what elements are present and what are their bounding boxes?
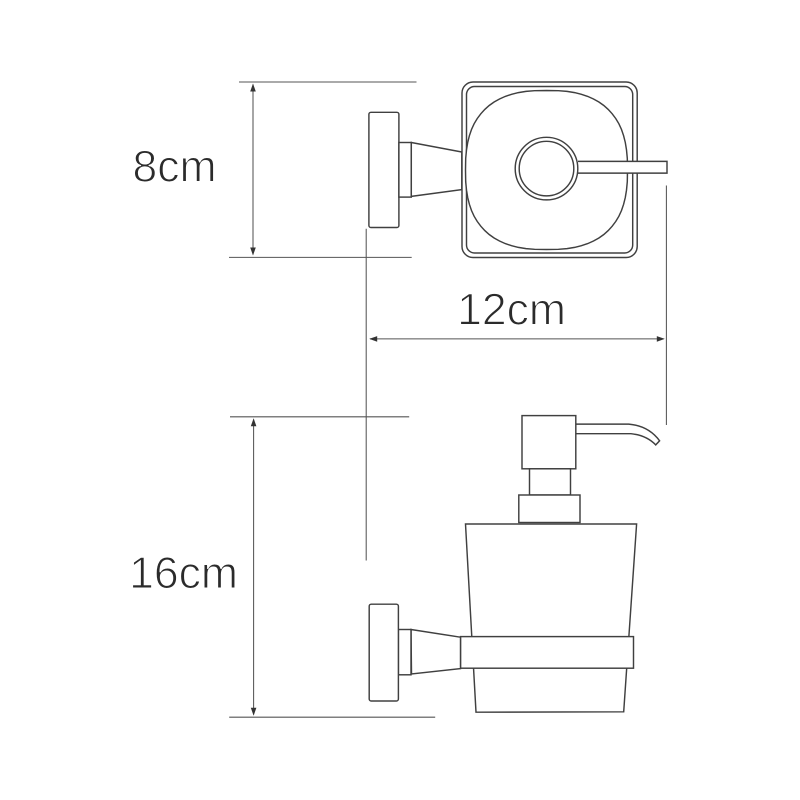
svg-text:16cm: 16cm — [129, 549, 238, 598]
svg-text:8cm: 8cm — [132, 142, 216, 191]
svg-text:12cm: 12cm — [457, 286, 566, 335]
